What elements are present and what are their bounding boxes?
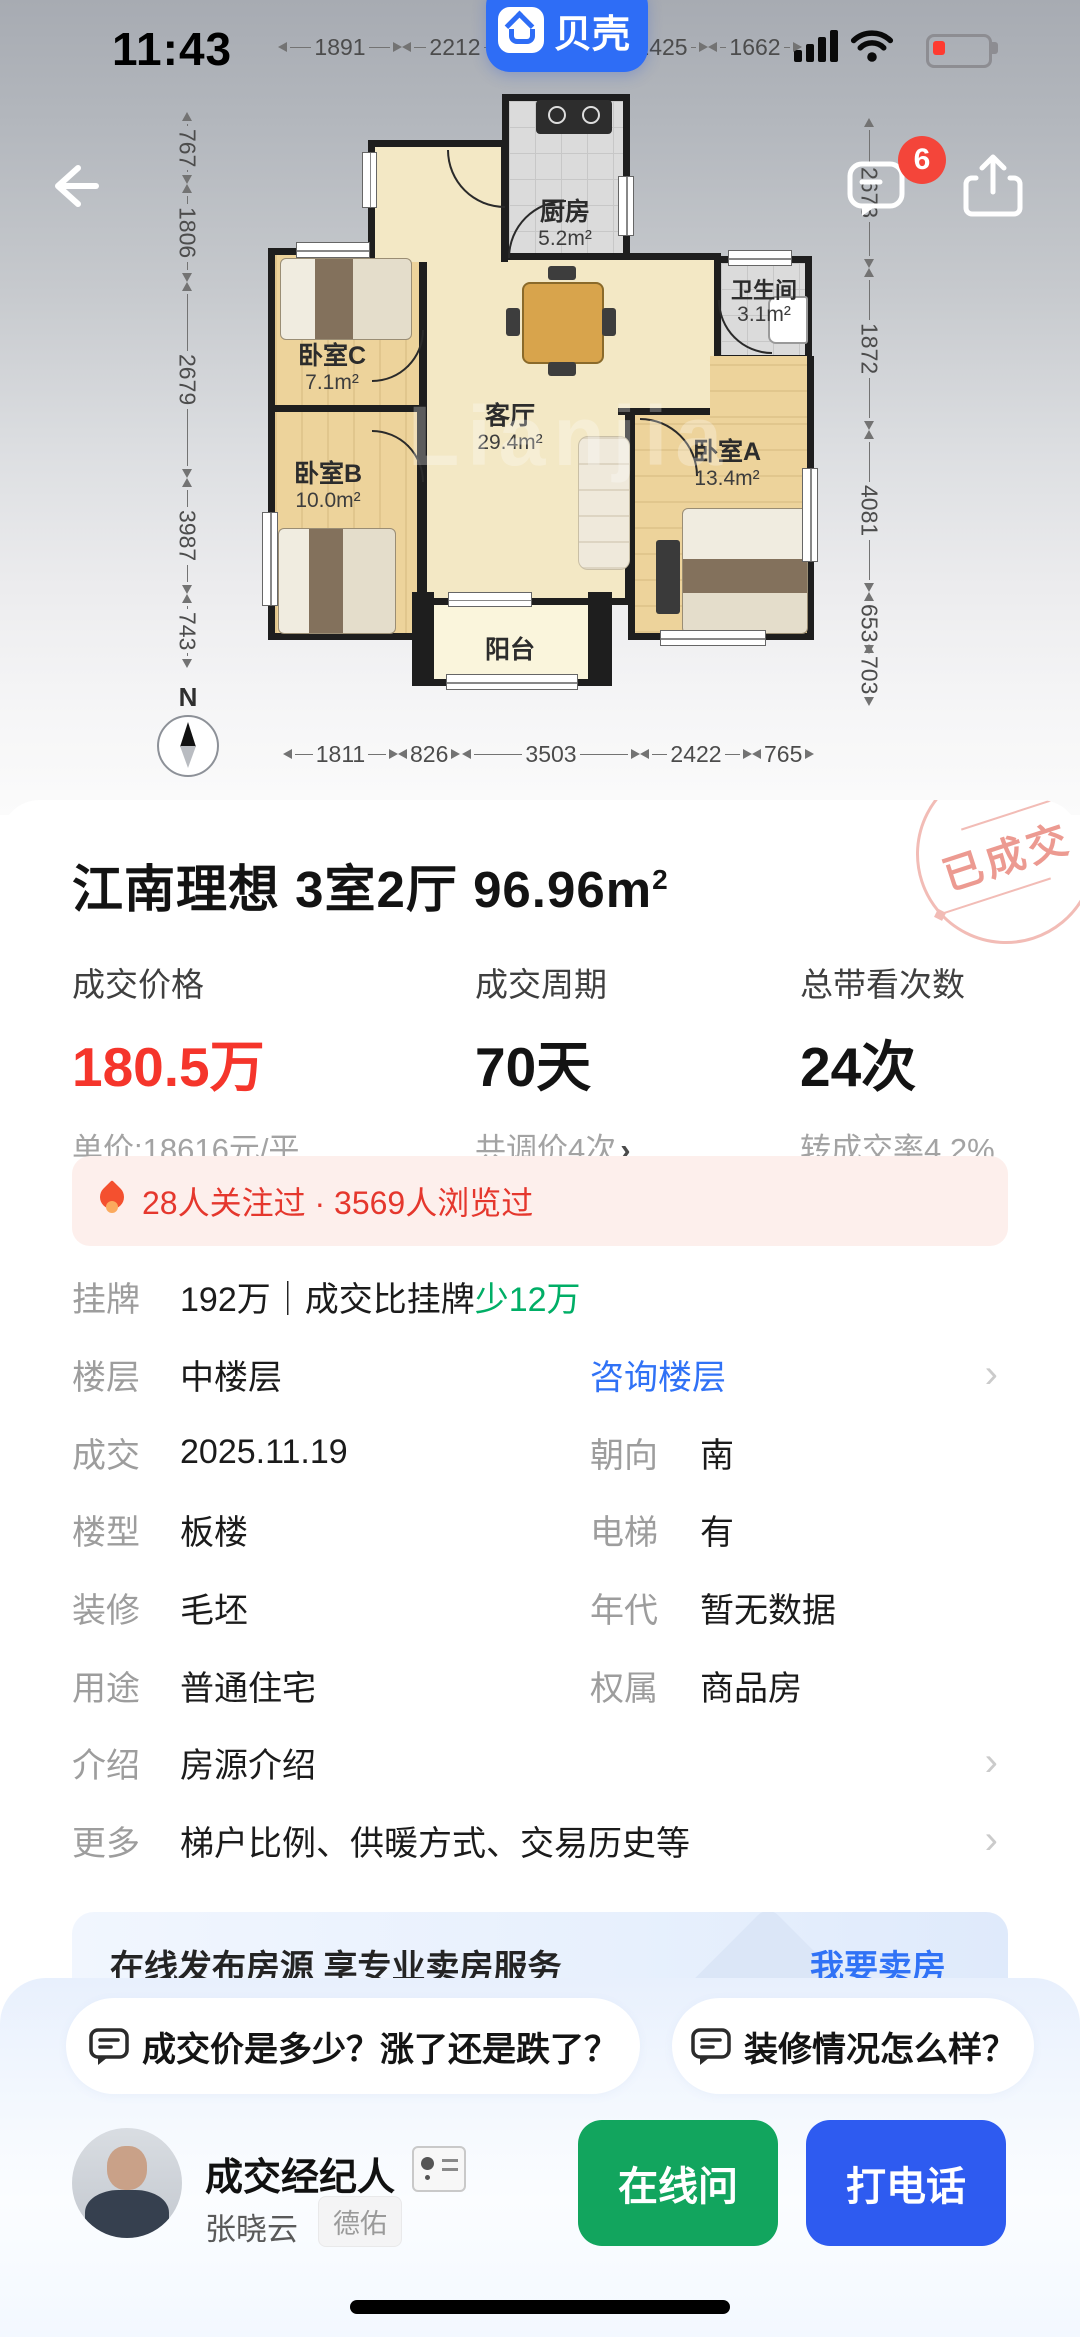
stove-burner-icon — [548, 106, 566, 124]
quick-question-decoration[interactable]: 装修情况怎么样？ — [672, 1998, 1034, 2094]
dining-chair — [506, 308, 520, 336]
stove-burner-icon — [582, 106, 600, 124]
tv-cabinet — [656, 540, 680, 614]
stat-deal-price: 成交价格 180.5万 单价:18616元/平 — [72, 958, 299, 1169]
detail-row-deal-date: 成交 2025.11.19 朝向 南 — [72, 1413, 1008, 1491]
detail-label: 朝向 — [590, 1428, 658, 1477]
bed-c — [280, 258, 412, 340]
room-label-bedroom-c: 卧室C 7.1m² — [282, 342, 382, 395]
stat-value: 24次 — [800, 1022, 995, 1102]
stat-value: 70天 — [475, 1022, 631, 1102]
chat-badge: 6 — [898, 136, 946, 184]
chat-bubble-icon — [88, 2026, 130, 2066]
detail-label: 更多 — [72, 1816, 180, 1865]
popularity-text: 28人关注过 · 3569人浏览过 — [142, 1178, 533, 1224]
window-bedroom-c — [296, 242, 370, 258]
room-label-bedroom-b: 卧室B 10.0m² — [278, 460, 378, 513]
stat-showings: 总带看次数 24次 转成交率4.2% — [800, 958, 995, 1169]
quick-question-price[interactable]: 成交价是多少？涨了还是跌了？ — [66, 1998, 640, 2094]
dim-right-2: 1872 — [856, 268, 882, 430]
dim-left-3: 2679 — [174, 282, 200, 478]
window-kitchen — [618, 176, 634, 236]
detail-value: 192万｜成交比挂牌 — [180, 1272, 475, 1321]
online-ask-button[interactable]: 在线问 — [578, 2120, 778, 2246]
room-name: 卫生间 — [731, 278, 797, 303]
agent-role: 成交经纪人 — [205, 2146, 395, 2201]
detail-label: 成交 — [72, 1428, 180, 1477]
agent-name: 张晓云 — [205, 2204, 298, 2249]
sold-stamp: 已成交 — [893, 800, 1080, 967]
chevron-right-icon: › — [985, 1354, 998, 1394]
chevron-right-icon: › — [985, 1820, 998, 1860]
dining-chair — [548, 266, 576, 280]
window-bedroom-a-south — [660, 630, 766, 646]
detail-label: 楼型 — [72, 1505, 180, 1554]
room-area: 7.1m² — [282, 371, 382, 395]
room-name: 阳台 — [485, 636, 535, 664]
detail-value: 有 — [700, 1505, 734, 1554]
detail-value: 板楼 — [180, 1505, 248, 1554]
detail-highlight-green: 少12万 — [475, 1272, 581, 1321]
balcony-wall-stub-right — [588, 592, 612, 686]
detail-value: 房源介绍 — [180, 1738, 316, 1787]
dim-top-1: 1891 — [278, 34, 402, 60]
stamp-text: 已成交 — [934, 806, 1077, 902]
window-bedroom-a-east — [802, 468, 818, 562]
wifi-icon — [850, 28, 894, 64]
dim-bottom-2: 826 — [398, 741, 462, 767]
page-title: 江南理想 3室2厅 96.96m2 — [72, 848, 669, 922]
stat-deal-cycle: 成交周期 70天 共调价4次› — [475, 958, 631, 1169]
room-name: 卧室C — [298, 342, 366, 370]
detail-label: 电梯 — [590, 1505, 658, 1554]
dim-left-1: 767 — [174, 112, 200, 184]
dining-chair — [548, 362, 576, 376]
detail-value: 梯户比例、供暖方式、交易历史等 — [180, 1816, 690, 1865]
detail-value: 中楼层 — [180, 1350, 282, 1399]
chat-bubble-icon — [690, 2026, 732, 2066]
compass-north-label: N — [179, 682, 198, 712]
detail-label: 装修 — [72, 1583, 180, 1632]
dim-left-5: 743 — [174, 594, 200, 668]
battery-icon — [926, 34, 992, 68]
detail-row-decoration: 装修 毛坯 年代 暂无数据 — [72, 1568, 1008, 1646]
detail-label: 挂牌 — [72, 1272, 180, 1321]
dining-chair — [602, 308, 616, 336]
home-indicator[interactable] — [350, 2300, 730, 2314]
room-label-bathroom: 卫生间 3.1m² — [716, 278, 812, 327]
dim-right-4: 653 — [856, 592, 882, 644]
bed-a — [682, 508, 808, 634]
detail-value: 暂无数据 — [700, 1583, 836, 1632]
detail-label: 用途 — [72, 1661, 180, 1710]
detail-value: 商品房 — [700, 1661, 802, 1710]
detail-row-usage: 用途 普通住宅 权属 商品房 — [72, 1646, 1008, 1724]
compass: N — [156, 682, 220, 777]
popularity-banner: 28人关注过 · 3569人浏览过 — [72, 1156, 1008, 1246]
window-balcony — [446, 674, 578, 690]
detail-label: 年代 — [590, 1583, 658, 1632]
room-area: 3.1m² — [716, 303, 812, 327]
detail-row-floor[interactable]: 楼层 中楼层 咨询楼层 › — [72, 1335, 1008, 1413]
chevron-right-icon: › — [985, 1742, 998, 1782]
detail-row-listing-price: 挂牌 192万｜成交比挂牌 少12万 — [72, 1257, 1008, 1335]
floorplan-photo-background[interactable]: 厨房 5.2m² 卫生间 3.1m² 卧室A 13.4m² 卧室C 7.1m² … — [0, 0, 1080, 815]
agent-brand-badge: 德佑 — [318, 2196, 402, 2247]
room-area: 5.2m² — [520, 227, 610, 251]
detail-row-building-type: 楼型 板楼 电梯 有 — [72, 1490, 1008, 1568]
room-name: 卧室B — [294, 460, 362, 488]
stat-value: 180.5万 — [72, 1022, 299, 1102]
stat-label: 成交价格 — [72, 958, 299, 1006]
bottom-sheet: 成交价是多少？涨了还是跌了？ 装修情况怎么样？ 成交经纪人 张晓云 德佑 在线问… — [0, 1978, 1080, 2337]
balcony-wall-stub-left — [412, 592, 434, 686]
call-button[interactable]: 打电话 — [806, 2120, 1006, 2246]
dim-left-2: 1806 — [174, 184, 200, 282]
compass-needle-icon — [157, 715, 219, 777]
dim-right-3: 4081 — [856, 430, 882, 592]
detail-row-introduction[interactable]: 介绍 房源介绍 › — [72, 1723, 1008, 1801]
room-label-kitchen: 厨房 5.2m² — [520, 198, 610, 251]
window-bedroom-b — [262, 512, 278, 606]
watermark: Lianjia — [408, 388, 730, 485]
detail-row-more[interactable]: 更多 梯户比例、供暖方式、交易历史等 › — [72, 1801, 1008, 1879]
beike-app-name: 贝壳 — [554, 3, 630, 58]
window-entry — [362, 152, 377, 208]
chat-button[interactable] — [846, 158, 906, 218]
dim-top-4: 1662 — [708, 34, 802, 60]
share-button[interactable] — [962, 152, 1024, 218]
dim-bottom-1: 1811 — [283, 741, 398, 767]
detail-label: 介绍 — [72, 1738, 180, 1787]
detail-label: 权属 — [590, 1661, 658, 1710]
window-bathroom — [728, 250, 792, 266]
dim-bottom-5: 765 — [752, 741, 804, 767]
dining-table — [522, 282, 604, 364]
flame-icon — [98, 1183, 126, 1219]
stat-label: 成交周期 — [475, 958, 631, 1006]
room-area: 10.0m² — [278, 489, 378, 513]
room-name: 厨房 — [540, 198, 590, 226]
window-living-balcony — [448, 592, 532, 607]
detail-value: 2025.11.19 — [180, 1433, 348, 1472]
quick-question-label: 成交价是多少？涨了还是跌了？ — [142, 2022, 618, 2071]
dim-bottom-4: 2422 — [640, 741, 752, 767]
detail-value: 毛坯 — [180, 1583, 248, 1632]
beike-logo-icon — [498, 7, 544, 53]
dim-right-5: 703 — [856, 644, 882, 694]
bed-b — [278, 528, 396, 634]
dim-bottom-3: 3503 — [462, 741, 640, 767]
agent-idcard-icon[interactable] — [412, 2146, 466, 2192]
detail-value: 普通住宅 — [180, 1661, 316, 1710]
quick-question-label: 装修情况怎么样？ — [744, 2022, 1016, 2071]
battery-level-low — [933, 41, 945, 55]
detail-value: 南 — [700, 1428, 734, 1477]
beike-app-banner[interactable]: 贝壳 — [486, 0, 648, 72]
battery-nub — [992, 42, 998, 54]
stat-label: 总带看次数 — [800, 958, 995, 1006]
detail-label: 楼层 — [72, 1350, 180, 1399]
agent-avatar[interactable] — [72, 2128, 182, 2238]
room-label-balcony: 阳台 — [460, 636, 560, 665]
status-time: 11:43 — [112, 22, 232, 76]
consult-floor-link[interactable]: 咨询楼层 — [590, 1350, 726, 1399]
dim-left-4: 3987 — [174, 478, 200, 594]
back-button[interactable] — [44, 160, 104, 212]
